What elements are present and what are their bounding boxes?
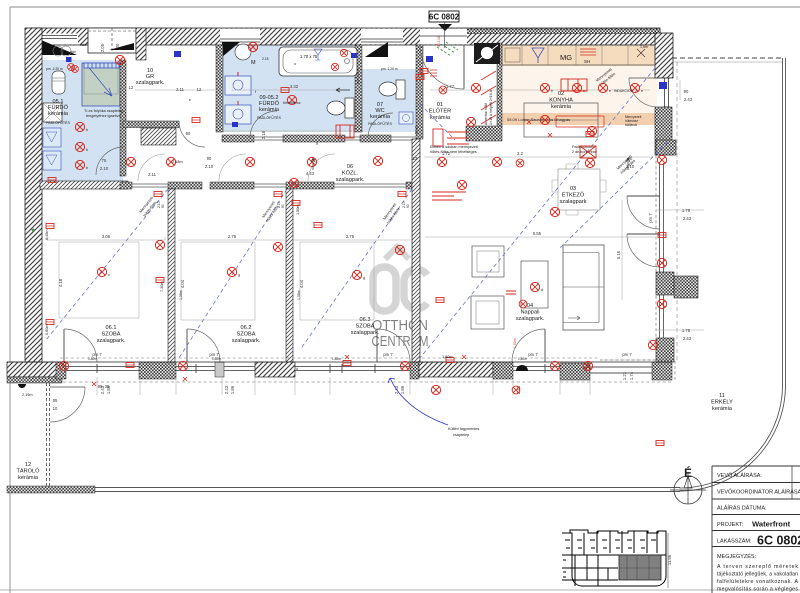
svg-text:b: b	[86, 166, 88, 170]
svg-text:4.04: 4.04	[180, 279, 185, 288]
svg-text:1,6m: 1,6m	[640, 45, 648, 49]
svg-text:4.04: 4.04	[299, 279, 304, 288]
svg-text:pm. 1,20 m: pm. 1,20 m	[381, 67, 398, 71]
svg-text:90: 90	[186, 131, 191, 136]
svg-text:7,30m: 7,30m	[160, 281, 164, 292]
svg-text:90 2.10: 90 2.10	[437, 36, 441, 47]
svg-text:tájékoztató jellegűek, a vakol: tájékoztató jellegűek, a vakolatlan	[717, 572, 798, 578]
svg-text:2,19m: 2,19m	[22, 393, 33, 397]
svg-text:pm 7: pm 7	[383, 352, 393, 357]
svg-text:KÖZL.: KÖZL.	[342, 170, 359, 177]
svg-text:11.96: 11.96	[667, 554, 672, 565]
svg-text:pm -2.20 m: pm -2.20 m	[46, 67, 63, 71]
svg-text:2.75: 2.75	[346, 234, 355, 239]
svg-text:1,80m: 1,80m	[212, 357, 221, 361]
svg-text:hűtés-fűtés nem lehetséges: hűtés-fűtés nem lehetséges	[430, 150, 477, 154]
svg-text:Ebben a sávban mennyezeti: Ebben a sávban mennyezeti	[430, 145, 478, 149]
svg-text:megvalósítás során a végleges: megvalósítás során a végleges	[717, 587, 798, 593]
svg-text:85: 85	[98, 384, 103, 389]
svg-text:2.10: 2.10	[100, 166, 109, 171]
svg-text:szalagpark.: szalagpark.	[336, 177, 365, 183]
svg-text:1,80m: 1,80m	[518, 357, 527, 361]
svg-text:b: b	[86, 148, 88, 152]
svg-text:02: 02	[558, 91, 564, 97]
svg-text:1.76: 1.76	[682, 328, 691, 333]
svg-text:1.74: 1.74	[629, 371, 634, 380]
svg-text:1,80m: 1,80m	[88, 357, 97, 361]
svg-text:e: e	[189, 98, 191, 102]
svg-text:pm 7: pm 7	[648, 213, 653, 223]
svg-text:g: g	[363, 276, 365, 280]
svg-text:PADLÓFŰTÉS: PADLÓFŰTÉS	[46, 120, 70, 125]
svg-text:M: M	[251, 60, 256, 66]
svg-text:b: b	[86, 128, 88, 132]
svg-text:2.10: 2.10	[626, 164, 635, 169]
svg-text:1.86: 1.86	[400, 385, 405, 394]
svg-text:szalagpark.: szalagpark.	[516, 316, 545, 322]
svg-text:pm.1,20 m: pm.1,20 m	[356, 68, 360, 84]
svg-text:falfelületekre vonatkoznak. A: falfelületekre vonatkoznak. A	[717, 579, 799, 585]
svg-text:2.10: 2.10	[205, 164, 214, 169]
svg-text:2.43: 2.43	[224, 385, 229, 394]
svg-text:12: 12	[413, 156, 418, 161]
svg-text:A terven szereplő méretek: A terven szereplő méretek	[717, 564, 798, 570]
svg-text:MG: MG	[560, 53, 572, 62]
svg-text:kerámia: kerámia	[18, 475, 39, 481]
svg-text:szalagpark: szalagpark	[559, 199, 586, 205]
svg-text:5.55: 5.55	[533, 231, 542, 236]
svg-text:d: d	[296, 367, 298, 371]
svg-text:90: 90	[207, 156, 212, 161]
svg-text:PADLÓFŰTÉS: PADLÓFŰTÉS	[368, 121, 392, 126]
svg-text:04: 04	[527, 303, 533, 309]
svg-text:06: 06	[347, 164, 353, 170]
svg-text:0,45m: 0,45m	[45, 229, 49, 240]
svg-text:PROJEKT:: PROJEKT:	[717, 522, 744, 528]
svg-text:01: 01	[437, 102, 443, 108]
svg-text:1,35m: 1,35m	[297, 290, 301, 300]
svg-text:Nappali: Nappali	[521, 310, 540, 316]
svg-text:3.06: 3.06	[102, 234, 111, 239]
svg-text:e: e	[609, 89, 611, 93]
svg-text:FÜRDŐ: FÜRDŐ	[48, 104, 69, 111]
svg-text:e: e	[641, 89, 643, 93]
svg-text:85: 85	[53, 398, 58, 403]
svg-text:3.32: 3.32	[290, 84, 299, 89]
svg-text:0,60m: 0,60m	[45, 324, 49, 335]
svg-text:SZOBA: SZOBA	[237, 332, 256, 338]
svg-text:o: o	[294, 62, 296, 66]
svg-text:PADLÓFŰTÉS: PADLÓFŰTÉS	[257, 115, 281, 120]
svg-text:1.79: 1.79	[682, 208, 691, 213]
svg-text:4.43: 4.43	[306, 171, 315, 176]
svg-text:2.43: 2.43	[684, 97, 693, 102]
svg-text:1.86: 1.86	[230, 385, 235, 394]
svg-text:szalagpark.: szalagpark.	[97, 338, 126, 344]
svg-text:2.11: 2.11	[148, 172, 157, 177]
svg-text:kerámia: kerámia	[48, 111, 69, 117]
svg-text:f: f	[255, 90, 256, 94]
svg-text:vide: vide	[80, 43, 86, 47]
svg-text:e: e	[551, 89, 553, 93]
svg-text:1.80m: 1.80m	[442, 355, 453, 359]
svg-text:75: 75	[102, 158, 107, 163]
svg-text:ÉTKEZŐ: ÉTKEZŐ	[562, 192, 585, 199]
svg-text:LAKÁSSZÁM:: LAKÁSSZÁM:	[717, 538, 752, 545]
svg-text:6C 0802: 6C 0802	[429, 13, 460, 22]
svg-text:90: 90	[684, 89, 689, 94]
svg-text:2.75: 2.75	[228, 234, 237, 239]
svg-text:4.18: 4.18	[58, 278, 63, 287]
svg-text:12: 12	[129, 85, 134, 90]
svg-text:FÜRDŐ: FÜRDŐ	[259, 100, 280, 107]
svg-text:KONYHA: KONYHA	[549, 98, 573, 104]
svg-text:kerámia: kerámia	[430, 115, 451, 121]
svg-text:Tí-es folyóka csaptelep,: Tí-es folyóka csaptelep,	[84, 109, 124, 113]
svg-text:1,35m: 1,35m	[179, 290, 183, 300]
svg-text:10: 10	[53, 406, 58, 411]
svg-text:12: 12	[197, 87, 202, 92]
svg-text:05.09 Lorem Szundeszios kihagy: 05.09 Lorem Szundeszios kihagyas	[507, 117, 570, 122]
svg-text:szalagpark.: szalagpark.	[136, 80, 165, 86]
svg-text:11: 11	[719, 393, 725, 399]
svg-text:1.70 x 75: 1.70 x 75	[300, 54, 318, 59]
svg-text:2.18: 2.18	[262, 57, 269, 61]
svg-text:1×16 A helyett 2×16 A: 1×16 A helyett 2×16 A	[489, 89, 493, 125]
svg-text:szalagpark.: szalagpark.	[232, 338, 261, 344]
svg-text:2.2: 2.2	[517, 151, 523, 156]
svg-text:5.15: 5.15	[616, 250, 621, 259]
svg-text:1.77: 1.77	[446, 84, 455, 89]
svg-text:03: 03	[570, 186, 576, 192]
svg-text:d: d	[541, 288, 543, 292]
svg-text:kerámia: kerámia	[712, 406, 733, 412]
svg-text:tengelyéhez igazítva: tengelyéhez igazítva	[86, 114, 122, 118]
svg-text:c: c	[108, 273, 110, 277]
svg-text:90: 90	[281, 204, 285, 208]
svg-text:81.0: 81.0	[414, 125, 419, 134]
svg-text:06.1: 06.1	[106, 325, 117, 331]
svg-text:kiállások: kiállások	[625, 123, 638, 127]
svg-text:ELŐTÉR: ELŐTÉR	[429, 108, 451, 115]
svg-text:pm 7: pm 7	[622, 352, 632, 357]
svg-text:2 db konnektor: 2 db konnektor	[572, 150, 598, 154]
svg-text:90: 90	[161, 204, 165, 208]
svg-text:SZOBA: SZOBA	[356, 324, 375, 330]
svg-text:2.18m: 2.18m	[172, 160, 183, 164]
svg-text:MEGJEGYZÉS:: MEGJEGYZÉS:	[717, 553, 757, 560]
svg-text:1,50m: 1,50m	[296, 204, 300, 215]
svg-text:kerámia: kerámia	[259, 107, 280, 113]
svg-text:vide: vide	[70, 50, 76, 54]
svg-text:35: 35	[105, 384, 110, 389]
svg-text:csaptelep: csaptelep	[453, 433, 469, 437]
svg-text:Kültéri fagymentes: Kültéri fagymentes	[448, 427, 480, 431]
svg-text:VEVŐKOORDINÁTOR ALÁÍRÁSA:: VEVŐKOORDINÁTOR ALÁÍRÁSA:	[717, 489, 800, 496]
svg-text:1.21: 1.21	[622, 371, 627, 380]
svg-text:SZOBA: SZOBA	[102, 332, 121, 338]
svg-text:12: 12	[25, 462, 31, 468]
svg-text:ALÁÍRÁS DÁTUMA:: ALÁÍRÁS DÁTUMA:	[717, 505, 767, 512]
svg-text:szalagpark.: szalagpark.	[351, 330, 380, 336]
svg-text:kerámia: kerámia	[551, 104, 572, 110]
svg-text:kerámia: kerámia	[370, 114, 391, 120]
svg-text:ERKÉLY: ERKÉLY	[711, 399, 733, 406]
svg-text:INDUKCIÓS: INDUKCIÓS	[614, 88, 634, 93]
svg-text:1,80m: 1,80m	[332, 357, 341, 361]
svg-text:2.43: 2.43	[683, 336, 692, 341]
svg-text:g: g	[316, 141, 318, 145]
svg-text:VEVŐ ALÁÍRÁSA:: VEVŐ ALÁÍRÁSA:	[717, 472, 762, 479]
svg-text:2.43: 2.43	[683, 216, 692, 221]
svg-text:2.11: 2.11	[176, 87, 185, 92]
svg-text:SH: SH	[584, 59, 590, 64]
svg-text:06.2: 06.2	[241, 325, 252, 331]
svg-text:TÁROLÓ: TÁROLÓ	[16, 468, 40, 475]
svg-text:90: 90	[406, 204, 410, 208]
svg-text:pm 7: pm 7	[528, 352, 538, 357]
svg-text:Waterfront: Waterfront	[752, 520, 791, 529]
svg-text:6C 0802: 6C 0802	[757, 534, 800, 548]
svg-text:1,50m: 1,50m	[513, 338, 517, 348]
svg-text:Kémdőlt wc: Kémdőlt wc	[283, 101, 301, 105]
svg-text:2.18: 2.18	[261, 130, 266, 139]
svg-text:g: g	[238, 273, 240, 277]
svg-text:2.05: 2.05	[100, 43, 105, 52]
